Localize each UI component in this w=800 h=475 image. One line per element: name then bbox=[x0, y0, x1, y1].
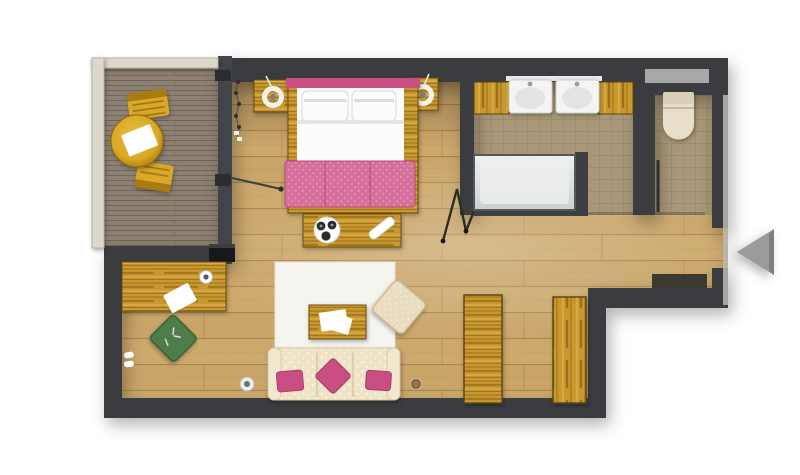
vanity-counter-left bbox=[474, 82, 509, 114]
sink-right bbox=[556, 80, 599, 113]
floor-plan-canvas bbox=[0, 0, 800, 475]
bed-blanket bbox=[285, 161, 415, 207]
pillow-left bbox=[302, 91, 348, 121]
wall-bottom bbox=[104, 398, 606, 418]
bathtub bbox=[474, 152, 588, 216]
cabinet-left bbox=[464, 295, 502, 403]
terrace-railing-top bbox=[92, 58, 218, 68]
wc-window bbox=[645, 69, 709, 83]
glass-wall-post-mid bbox=[215, 174, 231, 186]
sofa-pillow-right bbox=[365, 370, 391, 391]
bathroom-threshold bbox=[588, 212, 633, 215]
terrace-railing-left bbox=[92, 58, 104, 248]
sofa bbox=[268, 348, 400, 400]
desk bbox=[122, 262, 226, 313]
bed-bench bbox=[303, 214, 401, 247]
double-bed bbox=[285, 78, 420, 213]
toilet bbox=[663, 92, 694, 140]
floor-plan bbox=[0, 0, 800, 475]
wall-left bbox=[104, 246, 122, 398]
wall-bathroom-west bbox=[460, 82, 474, 215]
wall-southeast bbox=[588, 288, 606, 398]
coffee-table bbox=[309, 305, 366, 339]
entrance-arrow bbox=[737, 229, 774, 275]
wc-threshold bbox=[655, 212, 705, 215]
terrace-glass-wall bbox=[218, 56, 232, 248]
wall-entry-south bbox=[588, 288, 728, 308]
bed-headboard bbox=[286, 78, 420, 88]
wall-right-outer-edge bbox=[723, 95, 728, 305]
terrace-door-pivot bbox=[278, 186, 283, 191]
vanity-counter-right bbox=[598, 82, 633, 114]
floor-knob bbox=[412, 380, 420, 388]
terrace-table bbox=[111, 115, 163, 167]
doormat bbox=[652, 274, 707, 289]
wall-tv-gloss bbox=[209, 244, 235, 248]
pillow-right bbox=[352, 91, 396, 121]
sofa-pillow-left bbox=[276, 370, 304, 392]
cabinet-right bbox=[553, 297, 586, 403]
sink-left bbox=[509, 80, 552, 113]
entrance-arrow-edge bbox=[769, 229, 774, 275]
wall-bathroom-wc-divider bbox=[633, 82, 655, 215]
glass-wall-post-top bbox=[215, 70, 231, 81]
